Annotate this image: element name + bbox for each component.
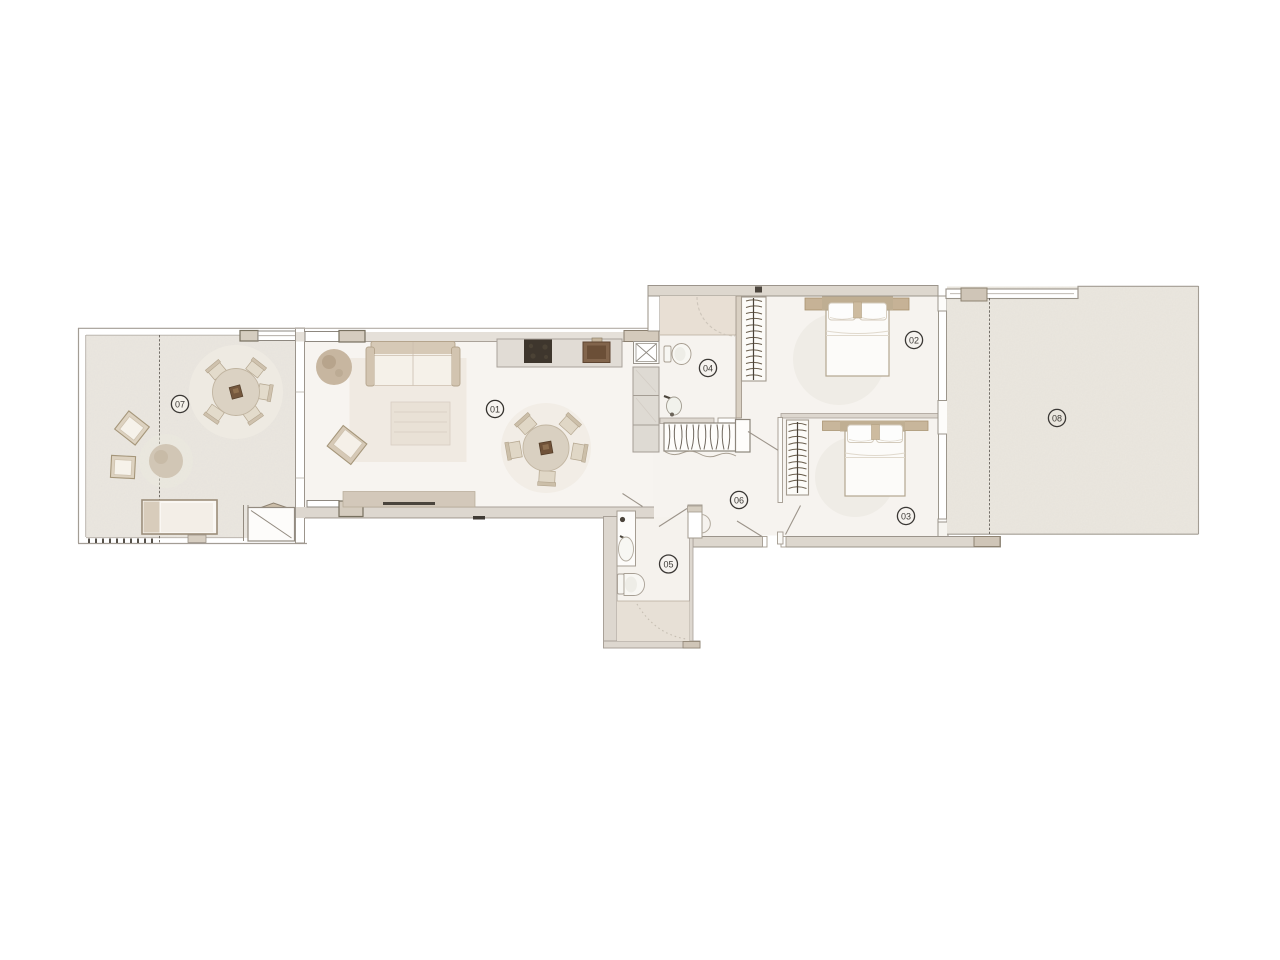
svg-text:05: 05 — [663, 559, 673, 569]
svg-text:01: 01 — [490, 404, 500, 414]
svg-text:06: 06 — [734, 495, 744, 505]
svg-text:07: 07 — [175, 399, 185, 409]
svg-text:08: 08 — [1052, 413, 1062, 423]
svg-text:02: 02 — [909, 335, 919, 345]
svg-text:03: 03 — [901, 511, 911, 521]
svg-text:04: 04 — [703, 363, 713, 373]
